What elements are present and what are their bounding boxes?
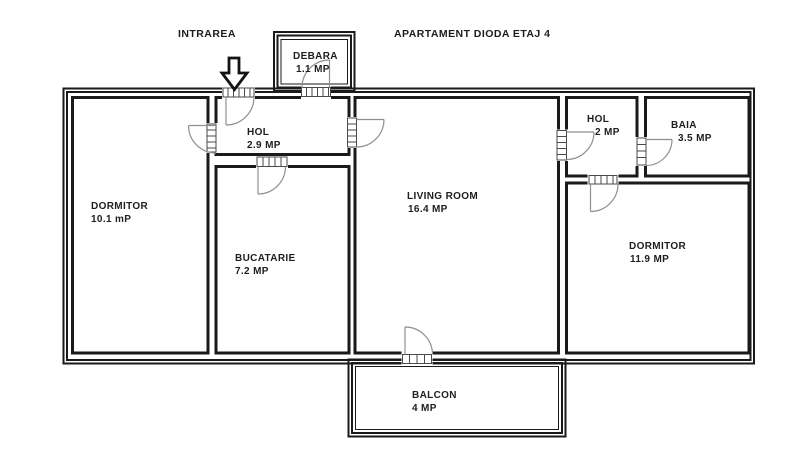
- room-area: 10.1 mP: [91, 214, 148, 227]
- floorplan: INTRAREA APARTAMENT DIODA ETAJ 4 DEBARA …: [0, 0, 800, 457]
- door-swing-baia: [646, 140, 672, 166]
- room-name: DORMITOR: [629, 241, 686, 254]
- door-swing-entrance: [226, 97, 254, 125]
- door-swing-bucatarie: [258, 167, 286, 195]
- entrance-label: INTRAREA: [178, 28, 236, 40]
- room-name: DORMITOR: [91, 201, 148, 214]
- threshold-dormitor-right: [589, 176, 617, 185]
- room-label-baia: BAIA 3.5 MP: [671, 120, 712, 145]
- room-living: [355, 98, 559, 354]
- threshold-hol-right: [557, 131, 567, 161]
- threshold-living: [348, 118, 357, 147]
- outer-wall-inner-line: [67, 92, 751, 360]
- floorplan-drawing: [0, 0, 800, 457]
- room-label-living: LIVING ROOM 16.4 MP: [407, 191, 478, 216]
- room-area: 7.2 MP: [235, 266, 296, 279]
- room-area: 11.9 MP: [630, 254, 686, 267]
- room-hol-entry: [216, 98, 349, 155]
- balcon-outer-wall: [349, 360, 566, 437]
- room-name: BALCON: [412, 390, 457, 403]
- room-name: BUCATARIE: [235, 253, 296, 266]
- room-area: 4 MP: [412, 403, 457, 416]
- room-label-dormitor-right: DORMITOR 11.9 MP: [629, 241, 686, 266]
- walls: [64, 32, 755, 437]
- entrance-arrow-icon: [222, 58, 247, 90]
- room-label-hol-right: HOL 2 MP: [587, 114, 620, 139]
- threshold-balcon: [403, 355, 432, 364]
- room-area: 1.1 MP: [296, 64, 338, 77]
- door-swing-dormitor-right: [591, 184, 619, 212]
- threshold-debara: [302, 88, 331, 97]
- room-dormitor-right: [567, 183, 750, 353]
- room-label-dormitor-left: DORMITOR 10.1 mP: [91, 201, 148, 226]
- room-name: HOL: [587, 114, 620, 127]
- room-name: HOL: [247, 127, 281, 140]
- balcon-inner-line: [356, 367, 559, 430]
- threshold-entrance: [223, 88, 254, 97]
- room-area: 2.9 MP: [247, 140, 281, 153]
- page-title: APARTAMENT DIODA ETAJ 4: [394, 28, 550, 40]
- threshold-baia: [637, 138, 646, 165]
- room-area: 16.4 MP: [408, 204, 478, 217]
- room-area: 2 MP: [595, 127, 620, 140]
- room-name: BAIA: [671, 120, 712, 133]
- room-area: 3.5 MP: [678, 133, 712, 146]
- room-label-debara: DEBARA 1.1 MP: [293, 51, 338, 76]
- room-name: DEBARA: [293, 51, 338, 64]
- threshold-bucatarie: [257, 157, 287, 167]
- room-name: LIVING ROOM: [407, 191, 478, 204]
- door-swing-living: [357, 120, 385, 148]
- room-label-bucatarie: BUCATARIE 7.2 MP: [235, 253, 296, 278]
- door-swing-balcon: [405, 327, 433, 355]
- room-label-hol-entry: HOL 2.9 MP: [247, 127, 281, 152]
- balcon-mid-wall: [352, 363, 562, 433]
- outer-wall-outline: [64, 89, 755, 364]
- threshold-dormitor-left: [207, 124, 216, 152]
- room-label-balcon: BALCON 4 MP: [412, 390, 457, 415]
